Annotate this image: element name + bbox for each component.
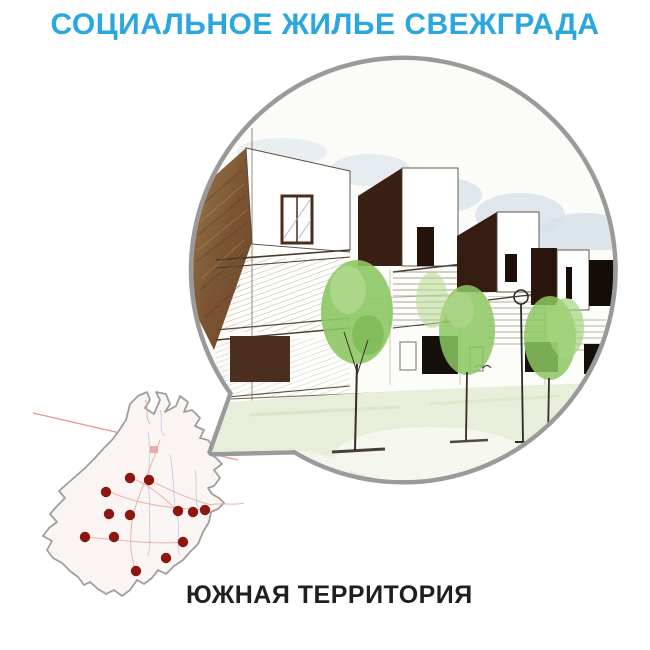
- territory-map: [33, 392, 244, 596]
- site-dot: [109, 532, 119, 542]
- site-dot: [131, 566, 141, 576]
- site-dot: [125, 473, 135, 483]
- site-dot: [104, 509, 114, 519]
- tree-背景-wash: [416, 272, 448, 328]
- slide: СОЦИАЛЬНОЕ ЖИЛЬЕ СВЕЖГРАДА: [0, 0, 650, 650]
- site-dot: [188, 507, 198, 517]
- grass-wash: [195, 383, 615, 495]
- site-dot: [125, 510, 135, 520]
- window: [505, 254, 517, 282]
- site-dot: [80, 532, 90, 542]
- map-town-block: [150, 446, 158, 453]
- site-dot: [144, 475, 154, 485]
- window: [566, 267, 572, 299]
- shadow-recess: [230, 336, 290, 382]
- diagram-canvas: [0, 0, 650, 650]
- region-label: ЮЖНАЯ ТЕРРИТОРИЯ: [186, 581, 473, 610]
- site-dot: [178, 537, 188, 547]
- site-dot: [173, 506, 183, 516]
- site-dot: [200, 505, 210, 515]
- housing-sketch: [180, 40, 640, 495]
- site-dot: [101, 487, 111, 497]
- site-dot: [161, 553, 171, 563]
- window: [417, 227, 434, 266]
